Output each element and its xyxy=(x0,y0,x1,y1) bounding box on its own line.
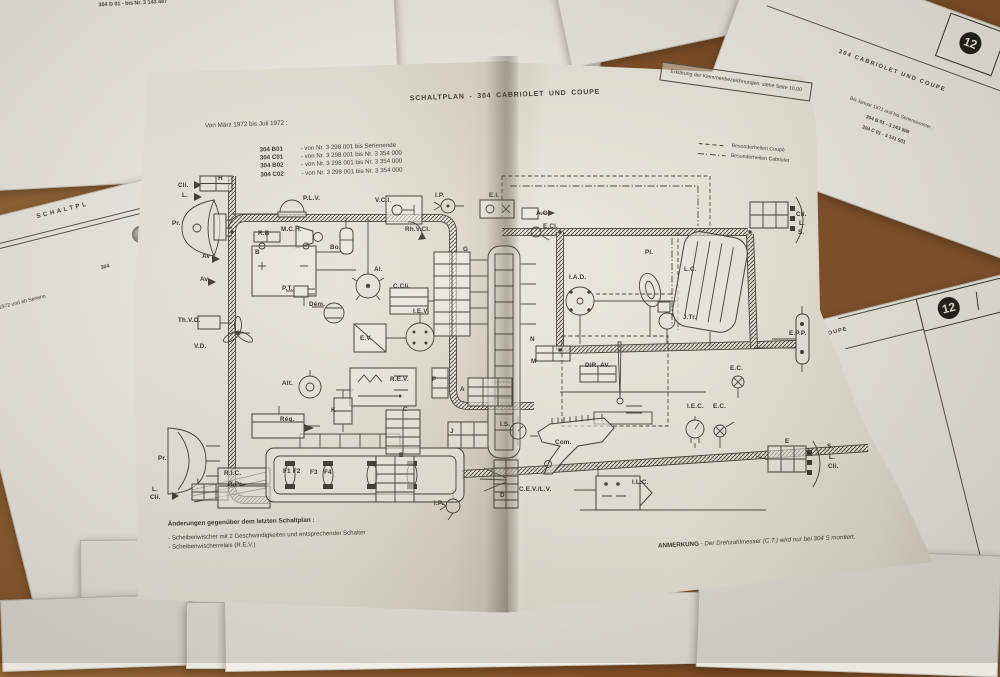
sheet-ref: 304 xyxy=(100,263,110,271)
page-code-cell: 10 84 xyxy=(976,256,1000,310)
model-list: 304 B01- von Nr. 3 298 001 bis Serienend… xyxy=(259,142,402,180)
background-sheet-bottom-strip xyxy=(186,602,228,669)
dashed-line-icon xyxy=(699,143,727,146)
sheet-frame-rule xyxy=(923,330,984,573)
page-number-badge: 12 xyxy=(956,29,984,57)
legend-label: Besonderheiten Cabriolet xyxy=(731,153,790,164)
page-number-bar: 12 10 84 xyxy=(916,249,1000,332)
sheet-heading: SCHALTPL xyxy=(36,200,89,220)
sheet-code-line: 304 D 01 - bis Nr. 3 143 487 xyxy=(98,0,167,8)
model-code: 304 C02 xyxy=(260,170,296,179)
changes-note: Änderungen gegenüber dem letzten Schaltp… xyxy=(168,515,366,552)
page-number-badge: 12 xyxy=(935,295,962,322)
background-sheet-bottom-left xyxy=(0,593,192,672)
dashdot-line-icon xyxy=(698,153,726,156)
page-number-cell: 12 xyxy=(935,13,1000,77)
page-number-cell: 12 xyxy=(918,290,980,325)
serial-line: 304 B 01 - 3 143 508 xyxy=(801,89,974,161)
sheet-frame-rule xyxy=(845,329,923,349)
photo-of-wiring-diagram-papers: { "colors":{"table_wood":"#8a5a2e","pape… xyxy=(0,0,1000,663)
sheet-note: Seit März 1972 und ab Serienn xyxy=(0,293,46,316)
sheet-frame-rule xyxy=(838,299,916,319)
